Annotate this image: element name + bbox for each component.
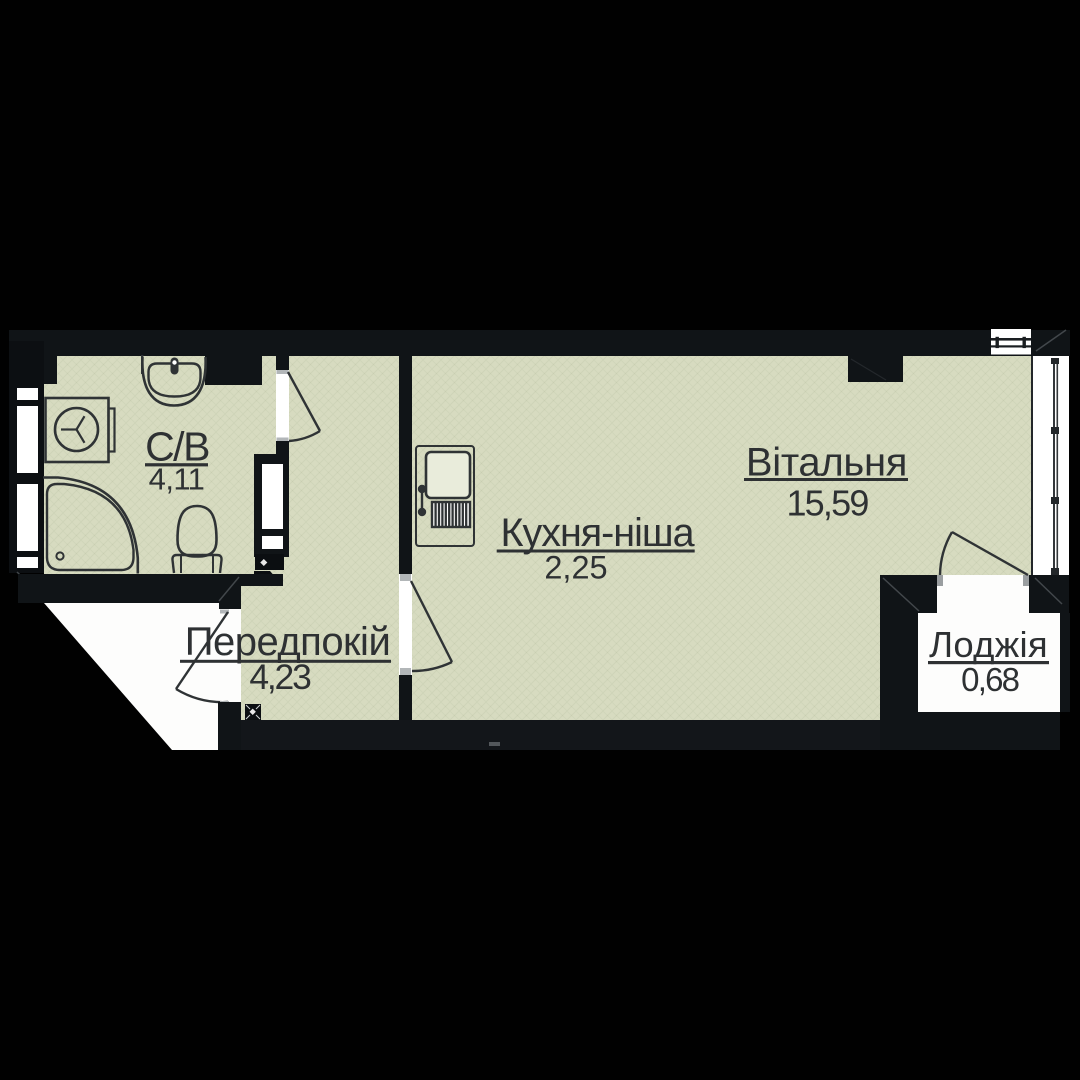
svg-text:2,25: 2,25 (544, 550, 607, 586)
svg-text:Кухня-ніша: Кухня-ніша (500, 511, 694, 555)
svg-text:Вітальня: Вітальня (746, 441, 907, 485)
svg-text:Лоджія: Лоджія (929, 624, 1048, 665)
svg-text:15,59: 15,59 (786, 483, 868, 524)
svg-text:4,11: 4,11 (149, 462, 205, 497)
svg-text:0,68: 0,68 (961, 661, 1018, 698)
svg-text:4,23: 4,23 (249, 657, 311, 697)
